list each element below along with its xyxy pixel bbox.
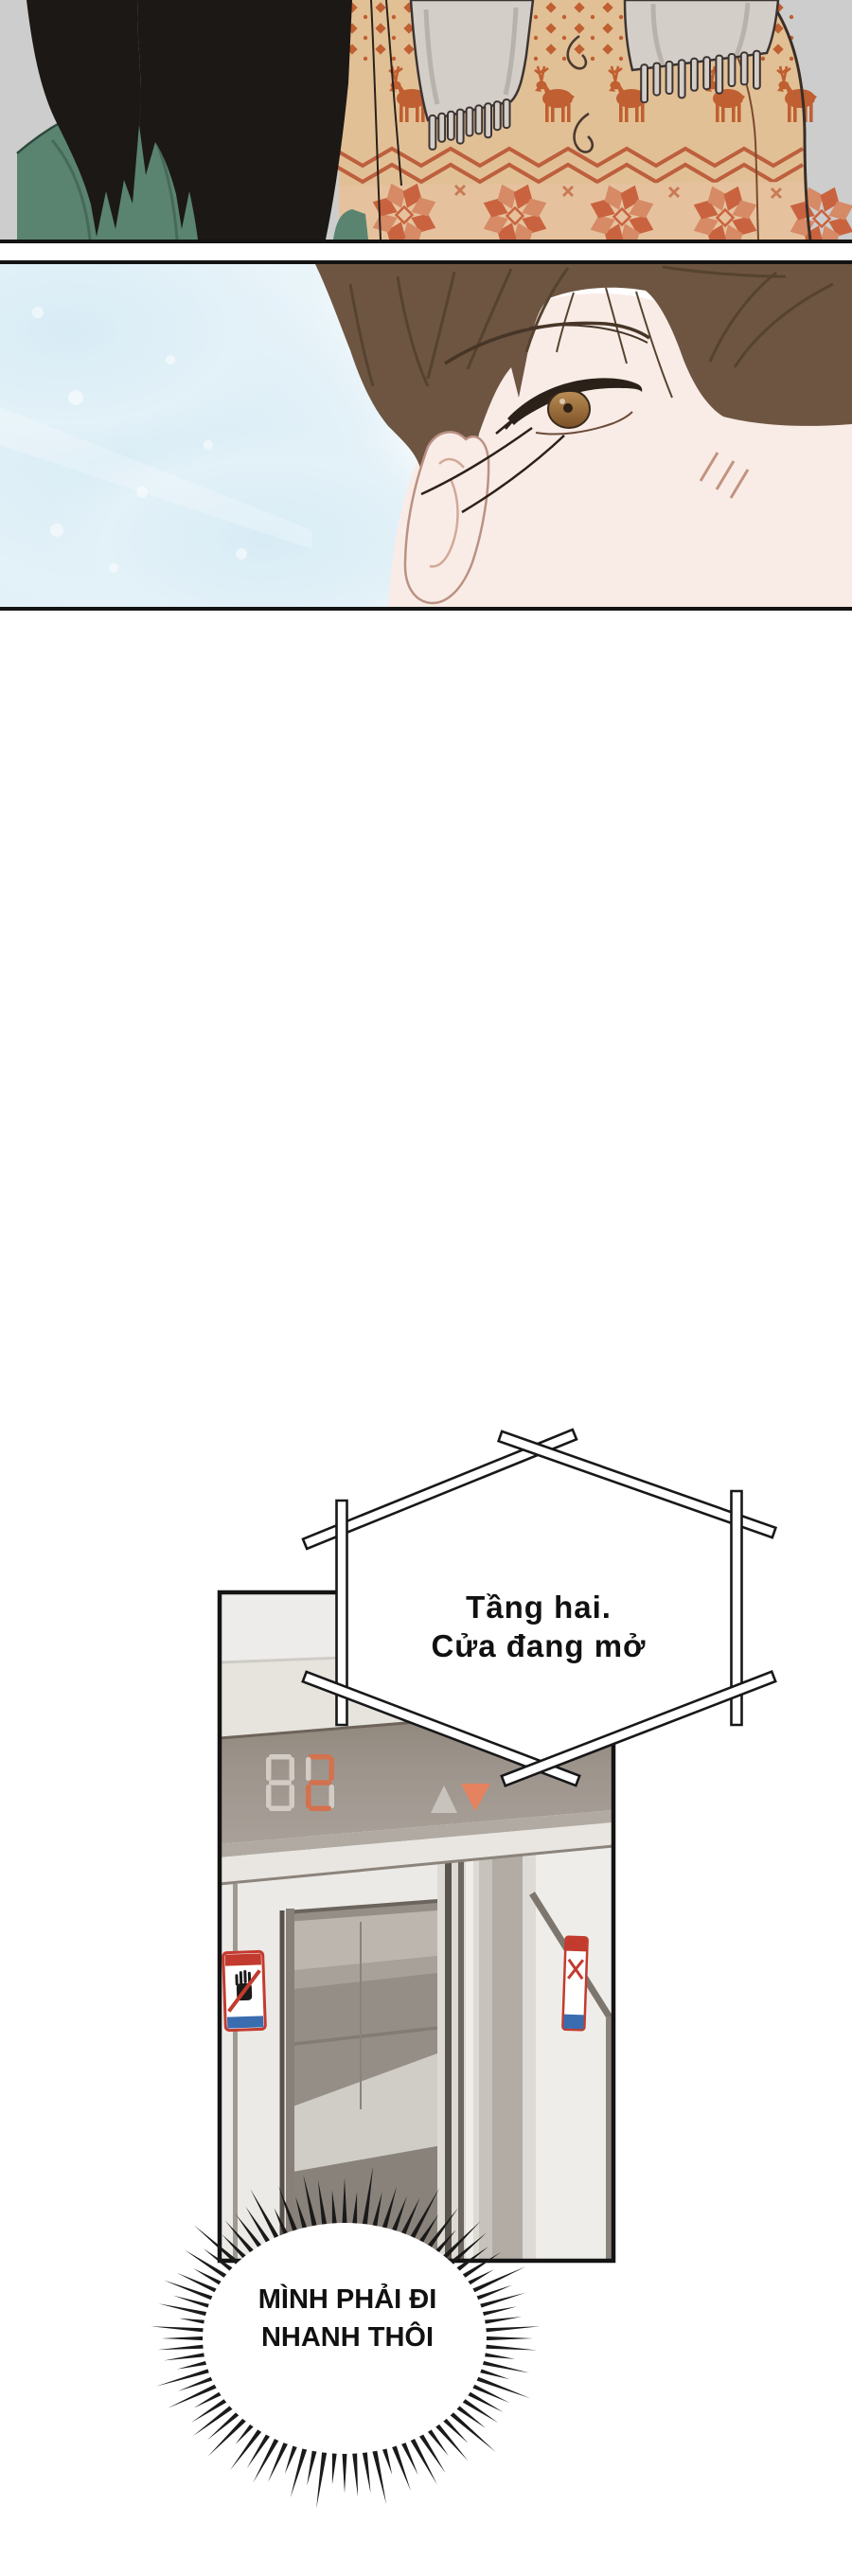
svg-text:Cửa đang mở: Cửa đang mở (431, 1628, 646, 1663)
svg-text:NHANH THÔI: NHANH THÔI (261, 2320, 434, 2353)
svg-text:Tầng hai.: Tầng hai. (466, 1590, 612, 1625)
svg-text:MÌNH PHẢI ĐI: MÌNH PHẢI ĐI (258, 2283, 437, 2315)
